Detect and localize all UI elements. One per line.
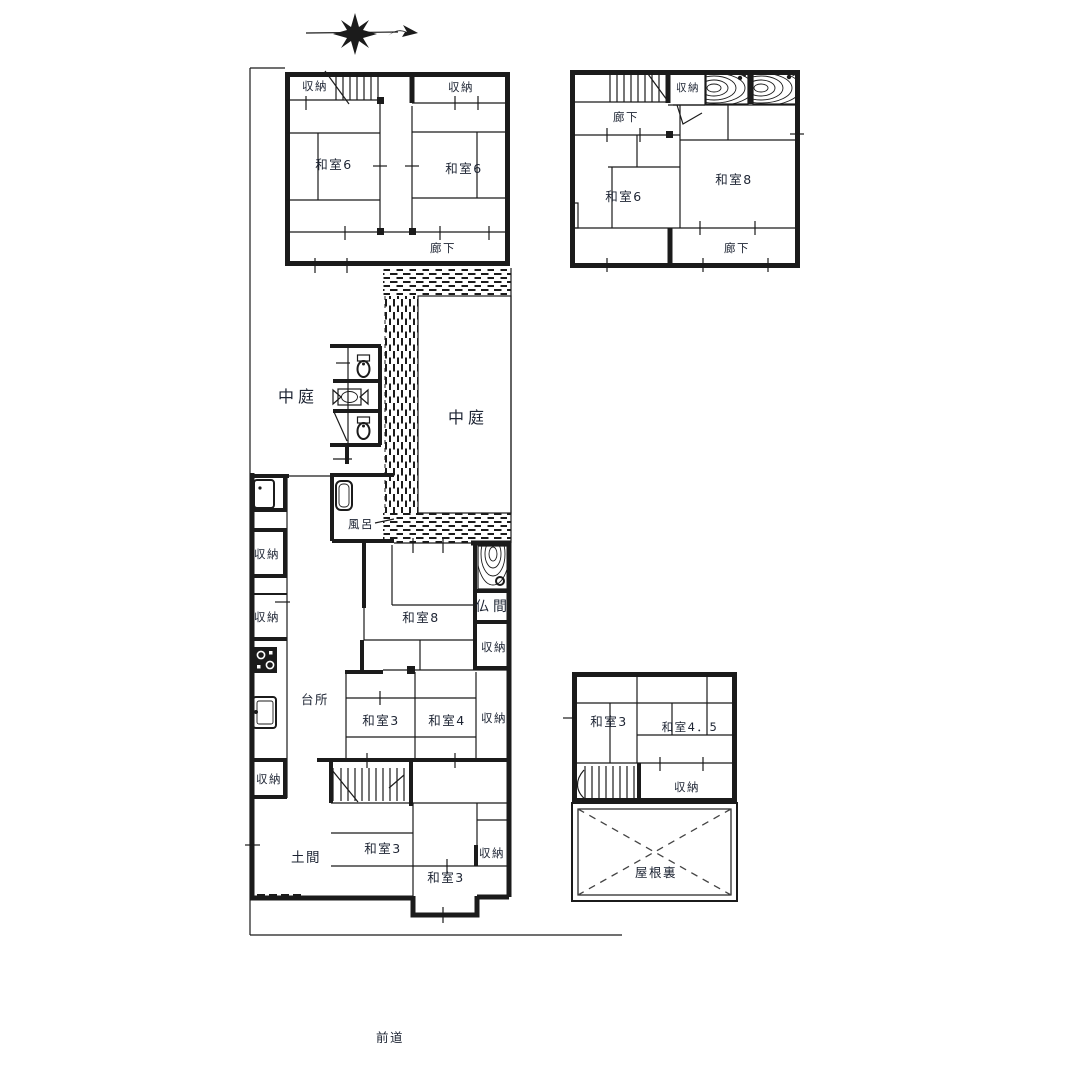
room-label-attic: 屋根裏 xyxy=(635,865,677,880)
toilet-icon xyxy=(358,355,370,377)
room-label-washitsu3: 和室3 xyxy=(364,841,401,856)
room-label-corridor: 廊下 xyxy=(613,110,639,124)
veranda-hatch-top xyxy=(383,268,511,296)
washbasin-icon xyxy=(254,480,274,508)
washbasin-icon xyxy=(333,389,368,405)
attic-plan: 屋根裏 xyxy=(572,803,737,901)
room-label-closet: 収納 xyxy=(676,81,700,94)
wood-grain-panel-icon xyxy=(721,70,801,106)
veranda-hatch-left xyxy=(383,296,418,513)
door-leaf-icon xyxy=(334,412,347,441)
bathtub-icon xyxy=(336,481,352,510)
room-label-washitsu3: 和室3 xyxy=(427,870,464,885)
room-label-closet: 収納 xyxy=(479,846,505,860)
room-label-doma: 土間 xyxy=(291,850,321,866)
room-label-bath: 風呂 xyxy=(348,517,374,531)
building-top-right: 廊下 収納 和室6 和室8 廊下 xyxy=(573,70,805,272)
kitchen-sink-icon xyxy=(253,697,276,728)
courtyard-and-veranda: 中庭 中庭 xyxy=(278,268,511,543)
toilet-icon xyxy=(358,417,370,439)
room-label-closet: 収納 xyxy=(481,640,507,654)
room-label-washitsu6: 和室6 xyxy=(315,157,352,172)
room-label-washitsu8: 和室8 xyxy=(715,172,752,187)
room-label-washitsu3: 和室3 xyxy=(362,713,399,728)
room-label-washitsu6: 和室6 xyxy=(605,189,642,204)
courtyard-label: 中庭 xyxy=(448,408,488,427)
courtyard-label: 中庭 xyxy=(278,387,318,406)
room-label-washitsu8: 和室8 xyxy=(402,610,439,625)
room-label-corridor: 廊下 xyxy=(724,241,750,255)
room-label-closet: 収納 xyxy=(302,79,328,93)
veranda-hatch-bottom xyxy=(383,513,511,543)
floor-plan-drawing: 収納 収納 和室6 和室6 廊下 xyxy=(0,0,1080,1080)
room-label-closet: 収納 xyxy=(674,780,700,794)
room-label-kitchen: 台所 xyxy=(301,692,329,707)
room-label-butsuma: 仏間 xyxy=(475,599,511,615)
building-bottom-right: 和室3 和室4．5 収納 屋根裏 xyxy=(563,675,737,902)
room-label-closet: 収納 xyxy=(254,547,280,561)
stairs-icon xyxy=(610,72,667,102)
room-label-closet: 収納 xyxy=(256,772,282,786)
building-top-left: 収納 収納 和室6 和室6 廊下 xyxy=(286,71,508,273)
stove-icon xyxy=(253,647,277,673)
room-label-corridor: 廊下 xyxy=(430,241,456,255)
north-arrow-icon xyxy=(306,13,418,55)
stairs-icon xyxy=(332,768,404,802)
road-label: 前道 xyxy=(376,1030,404,1045)
stairs-icon xyxy=(577,766,634,800)
bay-projection xyxy=(413,896,477,915)
toilet-block xyxy=(330,346,381,464)
main-floor-plan: 風呂 収納 収納 収納 和室8 仏間 収納 台所 和室3 和室4 収納 土間 和… xyxy=(245,473,511,923)
room-label-washitsu3: 和室3 xyxy=(590,714,627,729)
room-label-closet: 収納 xyxy=(448,80,474,94)
door-leaf-icon xyxy=(677,105,702,124)
room-label-washitsu4: 和室4 xyxy=(428,713,465,728)
room-label-closet: 収納 xyxy=(254,610,280,624)
room-label-washitsu4-5: 和室4．5 xyxy=(662,720,719,734)
floor-plan-page: 収納 収納 和室6 和室6 廊下 xyxy=(0,0,1080,1080)
room-label-washitsu6: 和室6 xyxy=(445,161,482,176)
courtyard-right-area xyxy=(418,296,511,513)
room-label-closet: 収納 xyxy=(481,711,507,725)
